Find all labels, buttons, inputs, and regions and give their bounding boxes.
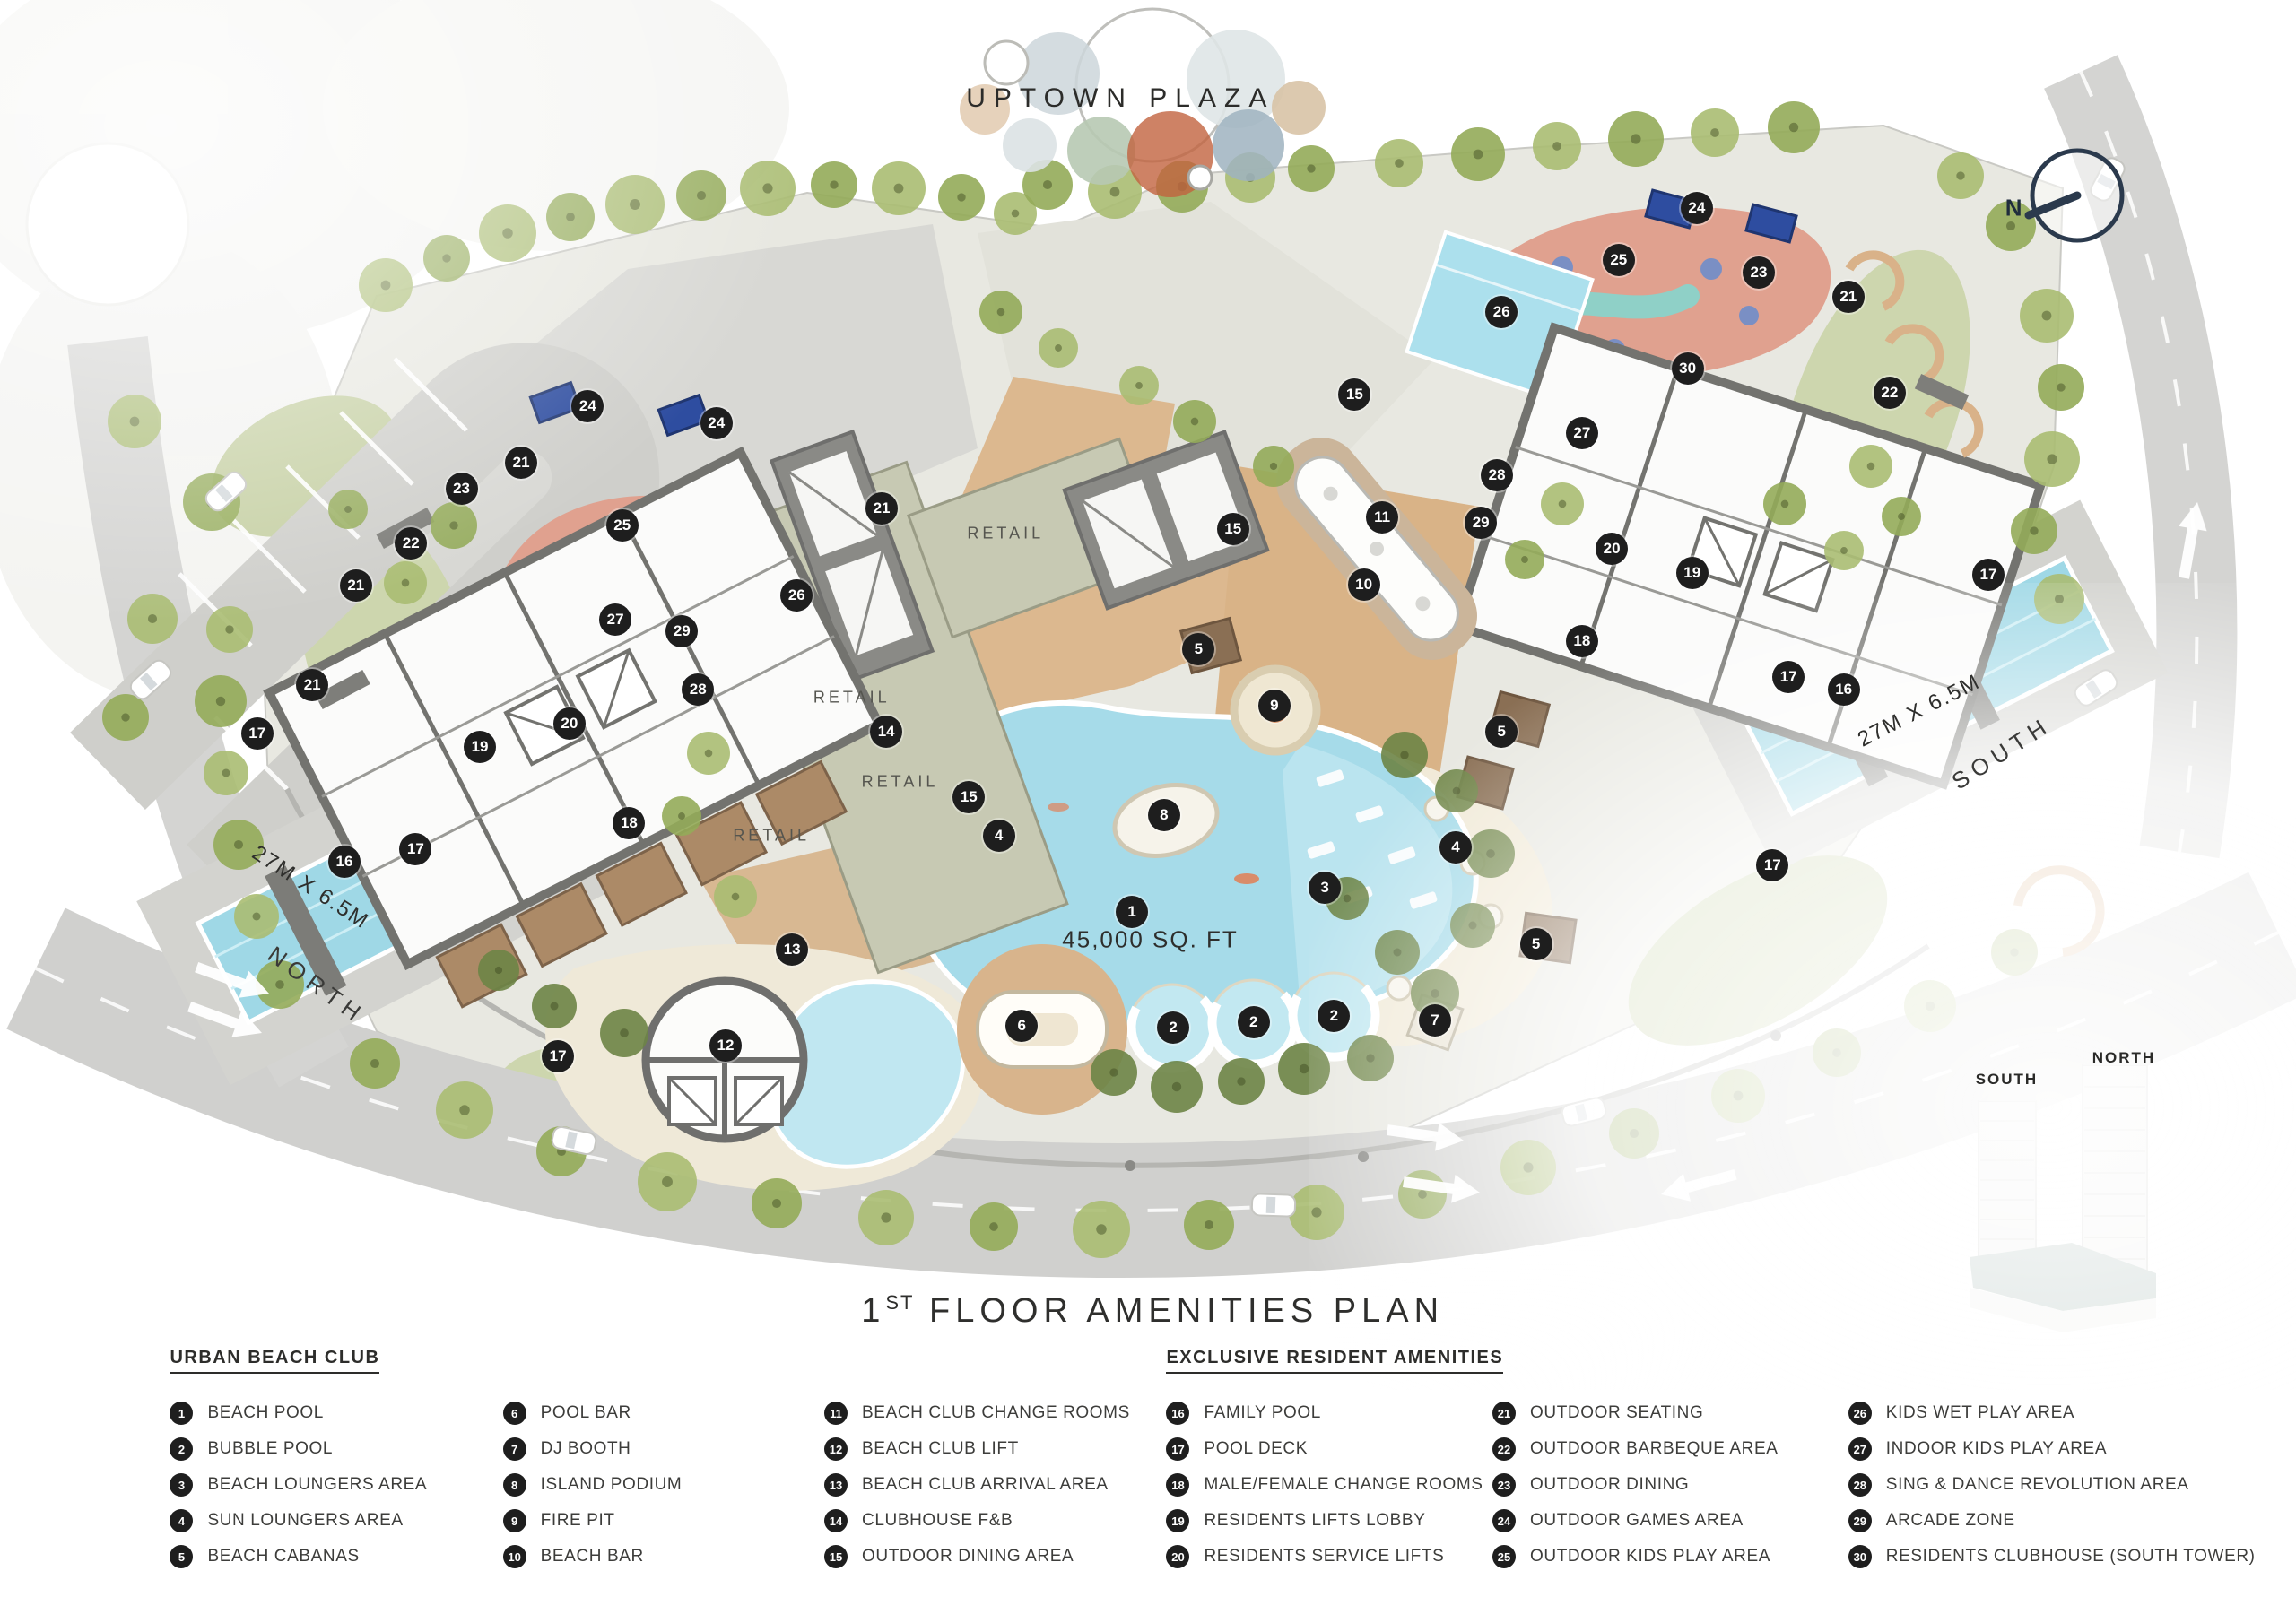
legend-item-label: FIRE PIT — [541, 1511, 615, 1531]
legend-item-10: 10BEACH BAR — [503, 1545, 683, 1568]
legend-item-label: ISLAND PODIUM — [541, 1475, 683, 1495]
legend-item-label: FAMILY POOL — [1204, 1403, 1321, 1423]
legend-item-number: 28 — [1848, 1473, 1872, 1497]
legend-header-beach-club: URBAN BEACH CLUB — [170, 1348, 379, 1374]
plan-marker-21: 21 — [505, 447, 537, 479]
legend-item-label: ARCADE ZONE — [1886, 1511, 2015, 1531]
lagoon-area-label: 45,000 SQ. FT — [1062, 925, 1239, 953]
plan-marker-30: 30 — [1672, 352, 1704, 385]
legend-item-label: OUTDOOR KIDS PLAY AREA — [1530, 1547, 1770, 1567]
legend-item-number: 18 — [1166, 1473, 1189, 1497]
legend-item-label: RESIDENTS CLUBHOUSE (SOUTH TOWER) — [1886, 1547, 2256, 1567]
legend-item-label: SING & DANCE REVOLUTION AREA — [1886, 1475, 2189, 1495]
plan-marker-9: 9 — [1258, 690, 1291, 722]
retail-label: RETAIL — [967, 525, 1044, 543]
legend-item-28: 28SING & DANCE REVOLUTION AREA — [1848, 1473, 2256, 1497]
plan-marker-20: 20 — [1596, 533, 1628, 565]
legend-item-number: 4 — [170, 1509, 193, 1532]
legend-item-5: 5BEACH CABANAS — [170, 1545, 427, 1568]
legend-item-label: RESIDENTS LIFTS LOBBY — [1204, 1511, 1425, 1531]
legend-item-6: 6POOL BAR — [503, 1402, 683, 1425]
plan-marker-26: 26 — [780, 579, 813, 612]
plan-marker-28: 28 — [682, 673, 714, 706]
legend-item-label: BEACH CABANAS — [207, 1547, 359, 1567]
legend-item-12: 12BEACH CLUB LIFT — [824, 1437, 1130, 1461]
legend-item-number: 24 — [1492, 1509, 1516, 1532]
legend-item-label: OUTDOOR GAMES AREA — [1530, 1511, 1744, 1531]
legend-item-26: 26KIDS WET PLAY AREA — [1848, 1402, 2256, 1425]
legend-item-number: 3 — [170, 1473, 193, 1497]
legend-item-label: SUN LOUNGERS AREA — [207, 1511, 403, 1531]
plan-marker-21: 21 — [1832, 281, 1865, 313]
legend-column: 6POOL BAR7DJ BOOTH8ISLAND PODIUM9FIRE PI… — [503, 1402, 683, 1568]
plan-marker-5: 5 — [1182, 633, 1214, 665]
plan-marker-19: 19 — [464, 731, 496, 763]
legend-item-18: 18MALE/FEMALE CHANGE ROOMS — [1166, 1473, 1483, 1497]
compass-icon — [2029, 151, 2122, 240]
legend-item-label: OUTDOOR BARBEQUE AREA — [1530, 1439, 1779, 1459]
legend-item-13: 13BEACH CLUB ARRIVAL AREA — [824, 1473, 1130, 1497]
legend-item-number: 22 — [1492, 1437, 1516, 1461]
legend-item-1: 1BEACH POOL — [170, 1402, 427, 1425]
plan-marker-23: 23 — [1743, 256, 1775, 289]
legend-item-7: 7DJ BOOTH — [503, 1437, 683, 1461]
legend-item-number: 12 — [824, 1437, 848, 1461]
plan-marker-15: 15 — [1217, 513, 1249, 545]
plan-marker-17: 17 — [399, 833, 431, 865]
plan-marker-20: 20 — [553, 707, 586, 740]
plan-marker-16: 16 — [1828, 673, 1860, 706]
uptown-plaza-label: UPTOWN PLAZA — [966, 83, 1274, 114]
legend-item-label: CLUBHOUSE F&B — [862, 1511, 1013, 1531]
plan-marker-15: 15 — [1338, 378, 1370, 411]
legend-item-number: 27 — [1848, 1437, 1872, 1461]
plan-marker-21: 21 — [865, 492, 898, 525]
plan-marker-16: 16 — [328, 846, 361, 878]
legend-item-label: RESIDENTS SERVICE LIFTS — [1204, 1547, 1444, 1567]
legend-item-label: BUBBLE POOL — [207, 1439, 333, 1459]
legend-item-27: 27INDOOR KIDS PLAY AREA — [1848, 1437, 2256, 1461]
legend-item-30: 30RESIDENTS CLUBHOUSE (SOUTH TOWER) — [1848, 1545, 2256, 1568]
legend-item-number: 15 — [824, 1545, 848, 1568]
legend-item-number: 16 — [1166, 1402, 1189, 1425]
plan-marker-17: 17 — [542, 1040, 574, 1072]
plan-marker-5: 5 — [1485, 716, 1518, 748]
plan-marker-10: 10 — [1348, 568, 1380, 601]
legend-item-number: 7 — [503, 1437, 526, 1461]
legend-item-number: 5 — [170, 1545, 193, 1568]
legend-item-3: 3BEACH LOUNGERS AREA — [170, 1473, 427, 1497]
legend-item-number: 21 — [1492, 1402, 1516, 1425]
legend-item-2: 2BUBBLE POOL — [170, 1437, 427, 1461]
plan-title: 1ST FLOOR AMENITIES PLAN — [861, 1292, 1444, 1332]
plan-marker-24: 24 — [1681, 192, 1713, 224]
plan-marker-27: 27 — [1566, 417, 1598, 449]
legend-item-label: KIDS WET PLAY AREA — [1886, 1403, 2074, 1423]
legend-item-label: OUTDOOR DINING AREA — [862, 1547, 1074, 1567]
legend-item-number: 10 — [503, 1545, 526, 1568]
plan-title-text: FLOOR AMENITIES PLAN — [914, 1292, 1444, 1330]
plan-marker-24: 24 — [700, 407, 733, 439]
plan-marker-29: 29 — [1465, 507, 1497, 539]
legend-item-number: 29 — [1848, 1509, 1872, 1532]
legend-item-label: OUTDOOR DINING — [1530, 1475, 1689, 1495]
legend-item-15: 15OUTDOOR DINING AREA — [824, 1545, 1130, 1568]
plan-marker-29: 29 — [665, 615, 698, 647]
legend-item-8: 8ISLAND PODIUM — [503, 1473, 683, 1497]
legend-item-11: 11BEACH CLUB CHANGE ROOMS — [824, 1402, 1130, 1425]
plan-marker-11: 11 — [1366, 501, 1398, 534]
legend-item-label: BEACH LOUNGERS AREA — [207, 1475, 427, 1495]
legend-item-number: 19 — [1166, 1509, 1189, 1532]
plan-title-ordinal: ST — [885, 1292, 914, 1315]
legend-item-23: 23OUTDOOR DINING — [1492, 1473, 1779, 1497]
plan-marker-4: 4 — [983, 820, 1015, 852]
amenities-plan-page: UPTOWN PLAZA RETAIL RETAIL RETAIL RETAIL… — [0, 0, 2296, 1623]
legend-column: 16FAMILY POOL17POOL DECK18MALE/FEMALE CH… — [1166, 1402, 1483, 1568]
legend-item-label: POOL DECK — [1204, 1439, 1308, 1459]
legend-item-label: INDOOR KIDS PLAY AREA — [1886, 1439, 2107, 1459]
plan-marker-21: 21 — [340, 569, 372, 602]
legend-item-number: 8 — [503, 1473, 526, 1497]
legend-item-number: 13 — [824, 1473, 848, 1497]
legend-item-number: 20 — [1166, 1545, 1189, 1568]
inset-north-label: NORTH — [2092, 1049, 2155, 1067]
plan-marker-19: 19 — [1676, 557, 1709, 589]
retail-label: RETAIL — [733, 827, 810, 846]
plan-marker-15: 15 — [952, 781, 985, 813]
plan-marker-3: 3 — [1309, 872, 1341, 904]
legend-item-number: 1 — [170, 1402, 193, 1425]
legend-item-label: MALE/FEMALE CHANGE ROOMS — [1204, 1475, 1483, 1495]
plan-marker-25: 25 — [606, 509, 639, 542]
legend-item-number: 23 — [1492, 1473, 1516, 1497]
legend-item-22: 22OUTDOOR BARBEQUE AREA — [1492, 1437, 1779, 1461]
legend-item-20: 20RESIDENTS SERVICE LIFTS — [1166, 1545, 1483, 1568]
legend-item-label: OUTDOOR SEATING — [1530, 1403, 1703, 1423]
plan-title-number: 1 — [861, 1292, 885, 1330]
legend-item-label: POOL BAR — [541, 1403, 631, 1423]
legend-column: 21OUTDOOR SEATING22OUTDOOR BARBEQUE AREA… — [1492, 1402, 1779, 1568]
inset-south-label: SOUTH — [1976, 1071, 2039, 1089]
legend-item-21: 21OUTDOOR SEATING — [1492, 1402, 1779, 1425]
plan-marker-18: 18 — [613, 807, 645, 839]
legend-column: 11BEACH CLUB CHANGE ROOMS12BEACH CLUB LI… — [824, 1402, 1130, 1568]
plan-marker-1: 1 — [1116, 896, 1148, 928]
plan-marker-5: 5 — [1520, 928, 1552, 960]
legend-item-label: BEACH BAR — [541, 1547, 644, 1567]
plan-marker-17: 17 — [241, 717, 274, 750]
plan-marker-17: 17 — [1756, 849, 1788, 881]
retail-label: RETAIL — [813, 689, 891, 707]
plan-marker-18: 18 — [1566, 625, 1598, 657]
plan-marker-22: 22 — [395, 527, 427, 560]
legend-item-label: BEACH CLUB CHANGE ROOMS — [862, 1403, 1130, 1423]
plan-marker-7: 7 — [1419, 1004, 1451, 1037]
plan-marker-22: 22 — [1874, 377, 1906, 409]
south-tower-render — [1979, 1085, 2036, 1267]
plan-marker-25: 25 — [1603, 244, 1635, 276]
plan-marker-2: 2 — [1318, 1000, 1350, 1032]
legend-column: 1BEACH POOL2BUBBLE POOL3BEACH LOUNGERS A… — [170, 1402, 427, 1568]
legend-item-24: 24OUTDOOR GAMES AREA — [1492, 1509, 1779, 1532]
plan-marker-13: 13 — [776, 933, 808, 966]
legend-column: 26KIDS WET PLAY AREA27INDOOR KIDS PLAY A… — [1848, 1402, 2256, 1568]
compass-north-label: N — [2005, 194, 2022, 221]
legend-item-17: 17POOL DECK — [1166, 1437, 1483, 1461]
legend-header-resident: EXCLUSIVE RESIDENT AMENITIES — [1166, 1348, 1503, 1374]
legend-item-label: BEACH CLUB LIFT — [862, 1439, 1019, 1459]
legend-item-4: 4SUN LOUNGERS AREA — [170, 1509, 427, 1532]
plan-marker-17: 17 — [1772, 661, 1805, 693]
plan-marker-2: 2 — [1238, 1006, 1270, 1038]
plan-marker-17: 17 — [1972, 559, 2005, 591]
plan-marker-24: 24 — [571, 390, 604, 422]
legend-item-number: 6 — [503, 1402, 526, 1425]
legend-item-19: 19RESIDENTS LIFTS LOBBY — [1166, 1509, 1483, 1532]
legend-item-number: 14 — [824, 1509, 848, 1532]
legend-item-25: 25OUTDOOR KIDS PLAY AREA — [1492, 1545, 1779, 1568]
plan-marker-28: 28 — [1481, 459, 1513, 491]
legend-item-16: 16FAMILY POOL — [1166, 1402, 1483, 1425]
legend-item-number: 30 — [1848, 1545, 1872, 1568]
legend-item-29: 29ARCADE ZONE — [1848, 1509, 2256, 1532]
plan-marker-23: 23 — [446, 473, 478, 505]
legend-item-label: DJ BOOTH — [541, 1439, 631, 1459]
plan-marker-6: 6 — [1005, 1010, 1038, 1042]
legend-item-number: 2 — [170, 1437, 193, 1461]
retail-label: RETAIL — [862, 773, 939, 792]
plan-marker-14: 14 — [870, 716, 902, 748]
legend-item-number: 11 — [824, 1402, 848, 1425]
legend-item-label: BEACH CLUB ARRIVAL AREA — [862, 1475, 1109, 1495]
legend-item-14: 14CLUBHOUSE F&B — [824, 1509, 1130, 1532]
plan-marker-4: 4 — [1439, 831, 1472, 864]
legend-item-number: 9 — [503, 1509, 526, 1532]
plan-marker-8: 8 — [1148, 799, 1180, 831]
legend-item-number: 25 — [1492, 1545, 1516, 1568]
legend-item-9: 9FIRE PIT — [503, 1509, 683, 1532]
plan-marker-27: 27 — [599, 603, 631, 636]
legend: URBAN BEACH CLUB EXCLUSIVE RESIDENT AMEN… — [0, 1341, 2296, 1610]
legend-item-number: 26 — [1848, 1402, 1872, 1425]
plan-marker-12: 12 — [709, 1029, 742, 1062]
legend-item-label: BEACH POOL — [207, 1403, 324, 1423]
plan-marker-26: 26 — [1485, 296, 1518, 328]
legend-item-number: 17 — [1166, 1437, 1189, 1461]
plan-marker-2: 2 — [1157, 1011, 1189, 1044]
plan-marker-21: 21 — [296, 669, 328, 701]
